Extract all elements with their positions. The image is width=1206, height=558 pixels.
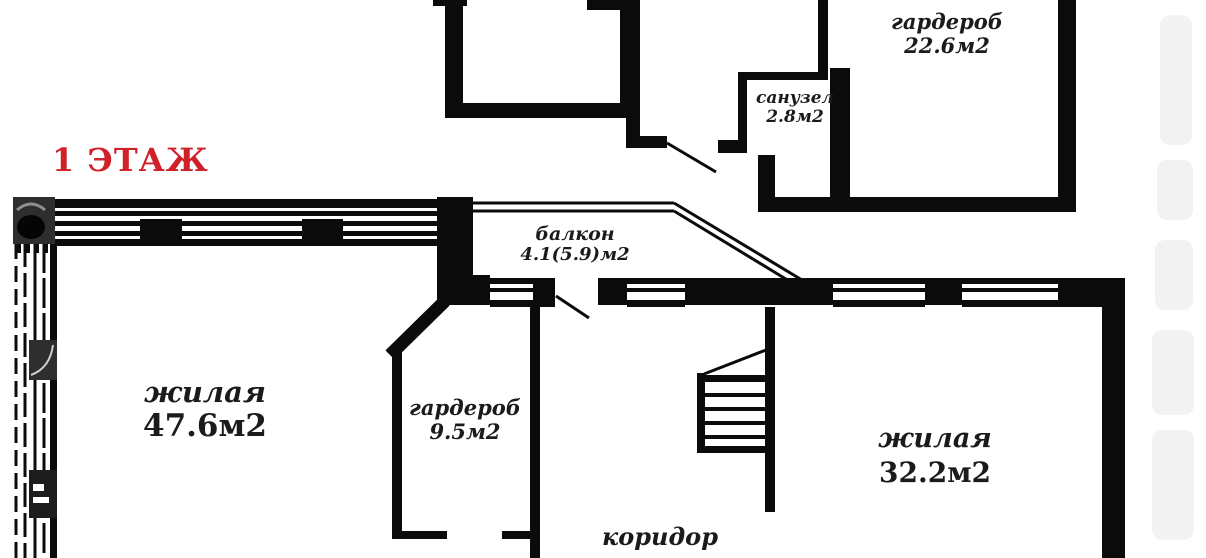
- room-label-corridor: коридор: [590, 524, 730, 551]
- room-label-bathroom: санузел 2.8м2: [725, 89, 865, 127]
- floor-title: 1 ЭТАЖ: [52, 141, 252, 179]
- room-label-living-right: жилая 32.2м2: [845, 424, 1025, 489]
- room-name: жилая: [100, 376, 310, 408]
- door-swing-balcony: [556, 296, 589, 318]
- staircase: [697, 373, 765, 453]
- room-area: 22.6м2: [852, 34, 1042, 58]
- room-name: санузел: [725, 89, 865, 108]
- watermark: [1152, 15, 1194, 540]
- balcony-edge-diagonal: [674, 203, 802, 280]
- floor-plan-drawing: [0, 0, 1206, 558]
- room-name: гардероб: [390, 396, 540, 420]
- room-name: коридор: [590, 524, 730, 551]
- room-label-wardrobe-small: гардероб 9.5м2: [390, 396, 540, 443]
- room-label-living-left: жилая 47.6м2: [100, 376, 310, 444]
- room-area: 2.8м2: [725, 108, 865, 127]
- room-area: 9.5м2: [390, 420, 540, 444]
- floor-plan: 1 ЭТАЖ гардероб 22.6м2 санузел 2.8м2 бал…: [0, 0, 1206, 558]
- corner-column-ornament: [13, 197, 55, 253]
- balcony-edge-diagonal-inner: [674, 211, 794, 284]
- door-swing-top: [667, 143, 716, 172]
- chamfer-wall: [390, 301, 445, 355]
- room-label-wardrobe-top: гардероб 22.6м2: [852, 10, 1042, 57]
- room-name: жилая: [845, 424, 1025, 454]
- room-label-balcony: балкон 4.1(5.9)м2: [495, 224, 655, 265]
- room-name: гардероб: [852, 10, 1042, 34]
- room-area: 4.1(5.9)м2: [495, 245, 655, 265]
- stair-direction-line: [704, 350, 766, 374]
- room-area: 47.6м2: [100, 409, 310, 444]
- room-area: 32.2м2: [845, 457, 1025, 488]
- room-name: балкон: [495, 224, 655, 245]
